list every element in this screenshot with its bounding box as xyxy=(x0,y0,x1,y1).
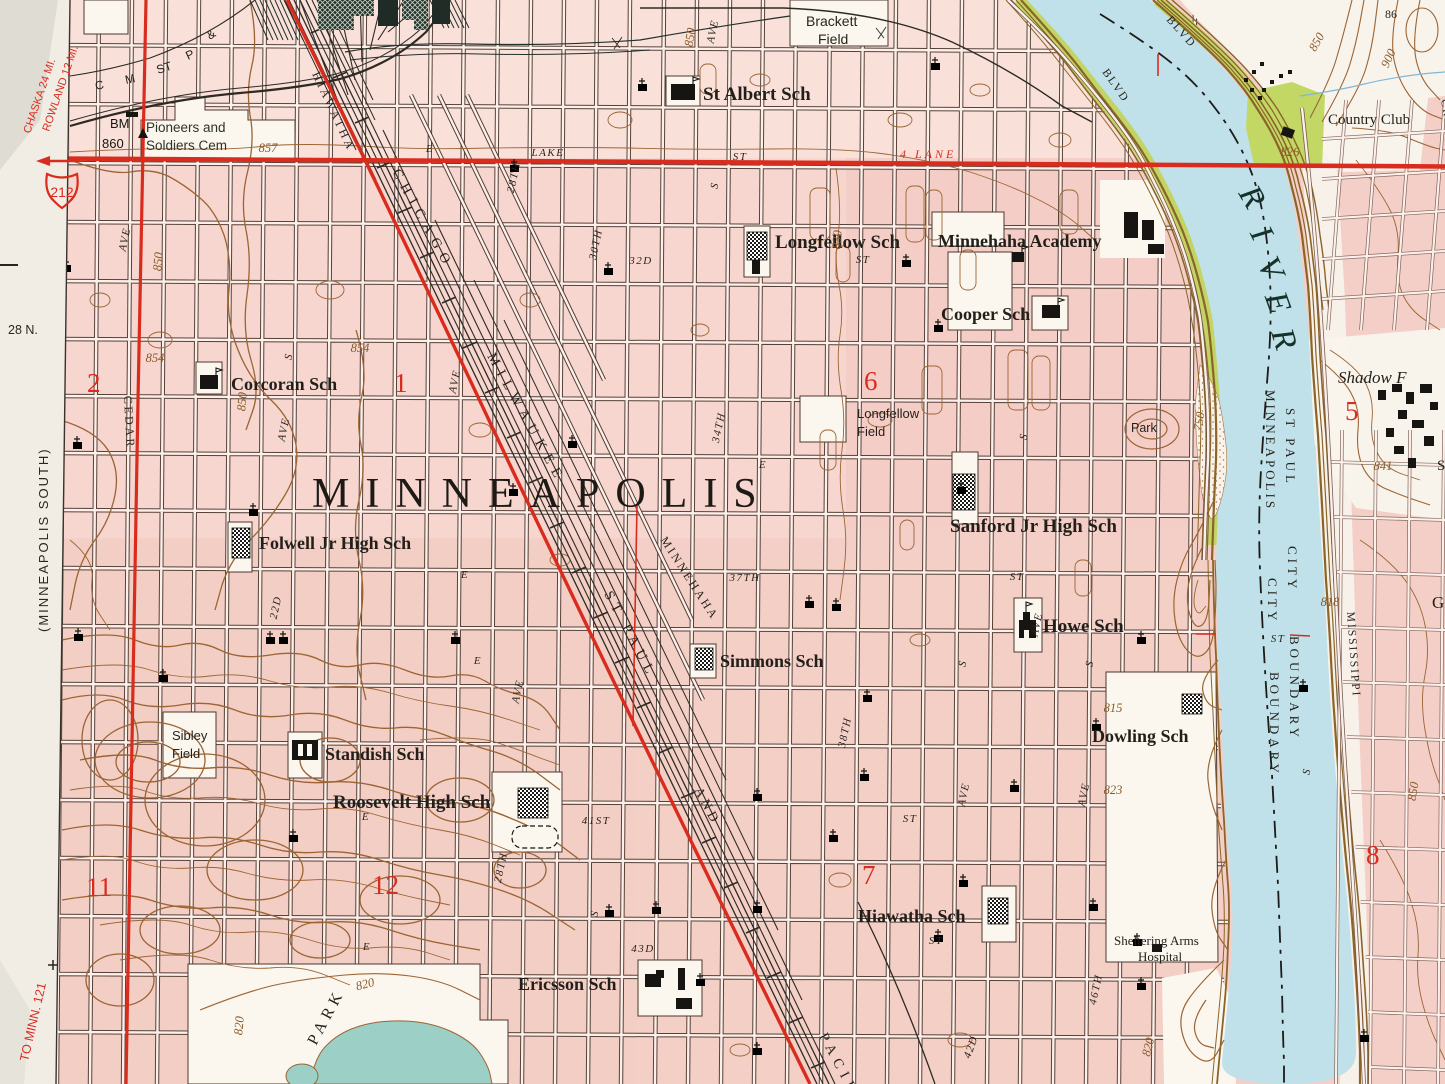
svg-text:Roosevelt High Sch: Roosevelt High Sch xyxy=(333,792,491,813)
svg-text:ST: ST xyxy=(733,151,748,163)
svg-text:43D: 43D xyxy=(631,943,654,955)
svg-text:6: 6 xyxy=(864,366,878,396)
svg-text:Shadow F: Shadow F xyxy=(1338,368,1407,387)
svg-text:ST: ST xyxy=(1010,571,1025,583)
svg-text:86: 86 xyxy=(1385,7,1397,21)
svg-text:CEDAR: CEDAR xyxy=(121,395,138,449)
svg-text:Field: Field xyxy=(172,746,200,761)
svg-text:Corcoran Sch: Corcoran Sch xyxy=(231,374,337,394)
svg-text:BOUNDARY: BOUNDARY xyxy=(1267,672,1282,777)
svg-text:815: 815 xyxy=(1104,701,1123,715)
svg-text:854: 854 xyxy=(146,351,165,365)
svg-text:E: E xyxy=(362,941,371,953)
svg-text:11: 11 xyxy=(86,872,112,902)
svg-text:ST: ST xyxy=(1271,633,1286,645)
svg-text:5: 5 xyxy=(1345,396,1359,426)
svg-text:ST: ST xyxy=(856,254,871,266)
svg-text:MINNEAPOLIS: MINNEAPOLIS xyxy=(312,471,773,517)
svg-text:823: 823 xyxy=(1104,783,1123,797)
svg-text:41ST: 41ST xyxy=(582,815,611,827)
svg-text:Field: Field xyxy=(818,31,848,47)
svg-text:Dowling Sch: Dowling Sch xyxy=(1092,726,1189,746)
svg-text:ST PAUL: ST PAUL xyxy=(1283,408,1298,487)
svg-text:1: 1 xyxy=(394,368,408,398)
svg-text:820: 820 xyxy=(231,1015,247,1036)
svg-text:G: G xyxy=(1432,593,1444,612)
svg-text:Field: Field xyxy=(857,424,885,439)
svg-text:Soldiers Cem: Soldiers Cem xyxy=(146,138,227,153)
svg-text:E: E xyxy=(361,811,370,823)
svg-text:860: 860 xyxy=(102,136,124,151)
svg-text:CITY: CITY xyxy=(1265,578,1280,624)
svg-text:Hiawatha Sch: Hiawatha Sch xyxy=(858,906,966,926)
svg-text:BM: BM xyxy=(110,116,130,131)
svg-text:37TH: 37TH xyxy=(728,572,760,584)
svg-text:850: 850 xyxy=(234,391,250,412)
svg-text:CITY: CITY xyxy=(1285,546,1300,592)
svg-text:E: E xyxy=(460,569,469,581)
svg-text:7: 7 xyxy=(862,860,876,890)
svg-text:Pioneers and: Pioneers and xyxy=(146,120,226,135)
svg-text:Sheltering Arms: Sheltering Arms xyxy=(1114,933,1199,948)
svg-text:Howe Sch: Howe Sch xyxy=(1043,616,1124,637)
svg-text:St Albert Sch: St Albert Sch xyxy=(703,84,811,105)
svg-text:857: 857 xyxy=(259,141,279,155)
svg-text:826: 826 xyxy=(1281,145,1301,159)
svg-text:Longfellow: Longfellow xyxy=(857,406,920,421)
svg-text:Sibley: Sibley xyxy=(172,728,208,743)
svg-text:Park: Park xyxy=(1131,421,1157,435)
svg-text:830: 830 xyxy=(829,229,845,250)
svg-text:4 LANE: 4 LANE xyxy=(900,147,956,161)
svg-text:32D: 32D xyxy=(628,255,652,267)
svg-text:ST: ST xyxy=(929,935,944,947)
svg-text:854: 854 xyxy=(351,341,370,355)
svg-text:Standish Sch: Standish Sch xyxy=(325,744,425,764)
svg-text:Sanford Jr High Sch: Sanford Jr High Sch xyxy=(950,516,1117,537)
svg-text:ST: ST xyxy=(903,813,918,825)
svg-text:Ericsson Sch: Ericsson Sch xyxy=(518,974,617,994)
svg-text:28 N.: 28 N. xyxy=(8,323,38,337)
svg-text:Hospital: Hospital xyxy=(1138,949,1182,964)
svg-text:E: E xyxy=(425,143,434,155)
svg-text:2: 2 xyxy=(87,368,101,398)
svg-text:841: 841 xyxy=(1374,459,1393,473)
svg-text:BOUNDARY: BOUNDARY xyxy=(1287,636,1302,741)
svg-text:Brackett: Brackett xyxy=(806,13,857,29)
svg-text:S: S xyxy=(1437,458,1445,474)
svg-text:Country Club: Country Club xyxy=(1328,112,1410,128)
svg-text:Folwell Jr High Sch: Folwell Jr High Sch xyxy=(259,533,411,553)
svg-text:Simmons Sch: Simmons Sch xyxy=(720,651,824,671)
svg-text:E: E xyxy=(758,459,767,471)
svg-text:818: 818 xyxy=(1321,595,1341,609)
svg-text:Minnehaha Academy: Minnehaha Academy xyxy=(938,231,1102,251)
svg-text:MINNEAPOLIS: MINNEAPOLIS xyxy=(1263,390,1278,511)
svg-text:LAKE: LAKE xyxy=(531,147,565,159)
svg-text:Cooper Sch: Cooper Sch xyxy=(941,304,1030,324)
svg-text:212: 212 xyxy=(50,184,74,200)
svg-text:E: E xyxy=(473,655,482,667)
svg-text:(MINNEAPOLIS SOUTH): (MINNEAPOLIS SOUTH) xyxy=(36,447,51,632)
svg-text:8: 8 xyxy=(1366,840,1380,870)
svg-text:850: 850 xyxy=(150,251,166,272)
svg-text:12: 12 xyxy=(372,870,399,900)
